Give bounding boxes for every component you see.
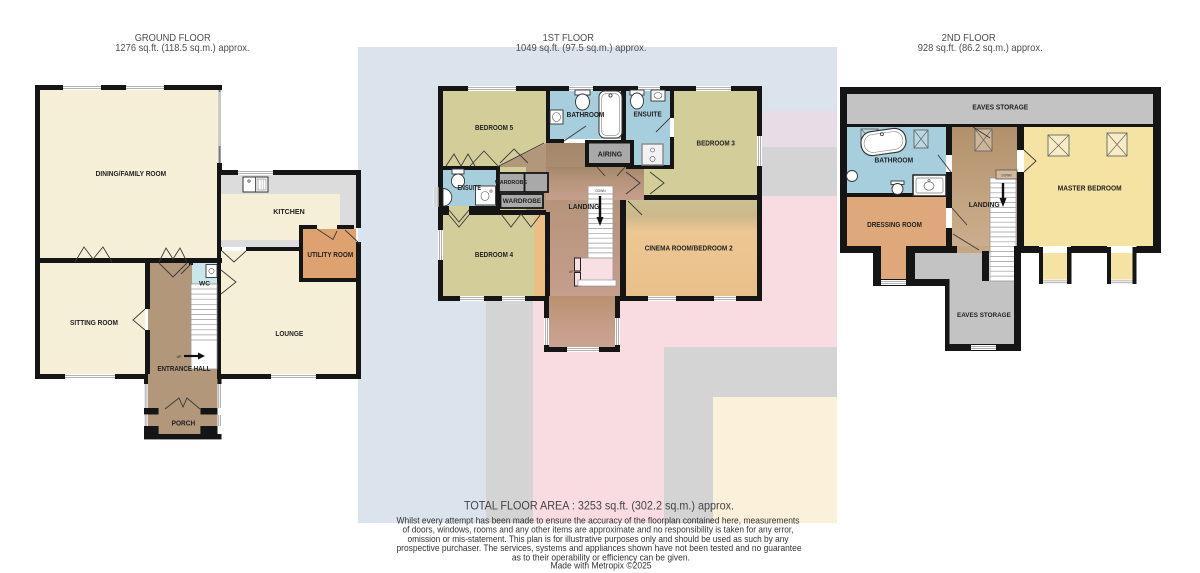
svg-text:1276 sq.ft. (118.5 sq.m.) appr: 1276 sq.ft. (118.5 sq.m.) approx. [115, 43, 249, 54]
svg-text:WARDROBE: WARDROBE [495, 180, 527, 186]
svg-text:MASTER BEDROOM: MASTER BEDROOM [1058, 186, 1122, 193]
svg-text:AIRING: AIRING [598, 152, 623, 159]
svg-text:DOWN: DOWN [1001, 174, 1012, 178]
svg-text:PORCH: PORCH [172, 421, 196, 428]
svg-text:EAVES STORAGE: EAVES STORAGE [957, 312, 1011, 319]
svg-text:BEDROOM 5: BEDROOM 5 [475, 125, 513, 132]
svg-text:UP: UP [569, 270, 573, 274]
svg-text:DINING/FAMILY ROOM: DINING/FAMILY ROOM [96, 171, 167, 178]
svg-text:UTILITY ROOM: UTILITY ROOM [307, 252, 353, 259]
svg-text:SITTING ROOM: SITTING ROOM [70, 320, 118, 327]
svg-text:DOWN: DOWN [595, 189, 606, 193]
svg-text:DRESSING ROOM: DRESSING ROOM [867, 222, 922, 229]
svg-text:1049 sq.ft. (97.5 sq.m.) appro: 1049 sq.ft. (97.5 sq.m.) approx. [516, 43, 647, 54]
svg-text:LANDING: LANDING [569, 204, 600, 211]
svg-text:EAVES STORAGE: EAVES STORAGE [972, 105, 1028, 112]
svg-text:CINEMA ROOM/BEDROOM 2: CINEMA ROOM/BEDROOM 2 [645, 245, 733, 252]
svg-text:LOUNGE: LOUNGE [275, 331, 303, 338]
svg-text:LANDING: LANDING [969, 202, 1000, 209]
svg-text:WARDROBE: WARDROBE [503, 198, 542, 205]
svg-text:BATHROOM: BATHROOM [567, 112, 605, 119]
svg-text:ENSUITE: ENSUITE [457, 185, 481, 192]
svg-text:BATHROOM: BATHROOM [875, 158, 914, 165]
svg-text:UP: UP [177, 355, 183, 359]
svg-text:Made with Metropix ©2025: Made with Metropix ©2025 [551, 561, 652, 571]
svg-text:928 sq.ft. (86.2 sq.m.) approx: 928 sq.ft. (86.2 sq.m.) approx. [918, 43, 1043, 54]
svg-text:ENSUITE: ENSUITE [634, 111, 663, 118]
svg-text:KITCHEN: KITCHEN [273, 209, 305, 216]
svg-text:BEDROOM 4: BEDROOM 4 [475, 252, 513, 259]
svg-text:BEDROOM 3: BEDROOM 3 [697, 141, 735, 148]
svg-text:ENTRANCE HALL: ENTRANCE HALL [157, 366, 211, 373]
svg-text:TOTAL FLOOR AREA : 3253 sq.ft.: TOTAL FLOOR AREA : 3253 sq.ft. (302.2 sq… [464, 499, 734, 513]
svg-text:WC: WC [199, 282, 211, 288]
